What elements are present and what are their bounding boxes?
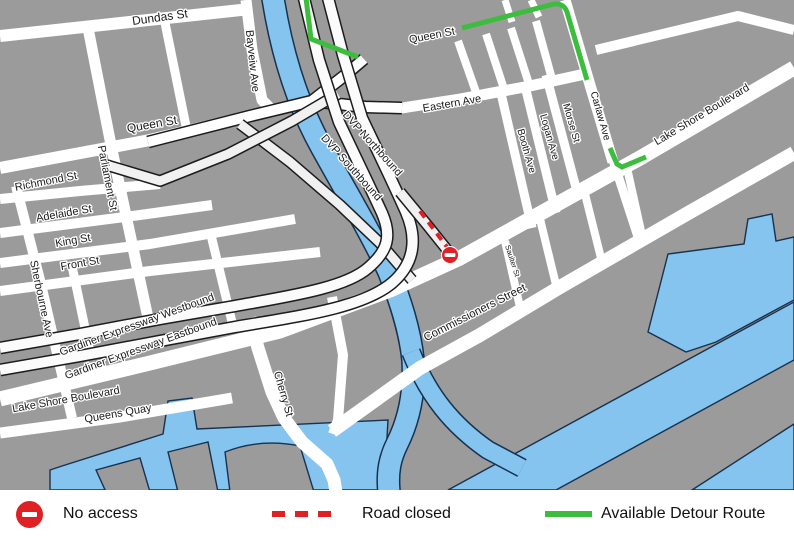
- legend-label-no-access: No access: [63, 505, 138, 523]
- solid-line-icon: [545, 511, 592, 517]
- harbour-island: [225, 443, 314, 490]
- legend-item-detour: Available Detour Route: [545, 490, 765, 538]
- legend-item-road-closed: Road closed: [272, 490, 451, 538]
- map-canvas: Dundas St Queen St Richmond St Adelaide …: [0, 0, 794, 490]
- legend-label-road-closed: Road closed: [362, 505, 451, 523]
- no-entry-map-icon: [442, 247, 459, 264]
- dashed-line-icon: [272, 511, 340, 517]
- map-legend: No access Road closed Available Detour R…: [0, 490, 794, 538]
- road-closure-map: Dundas St Queen St Richmond St Adelaide …: [0, 0, 794, 538]
- legend-item-no-access: No access: [16, 490, 138, 538]
- legend-label-detour: Available Detour Route: [601, 505, 765, 523]
- no-entry-icon: [16, 501, 43, 528]
